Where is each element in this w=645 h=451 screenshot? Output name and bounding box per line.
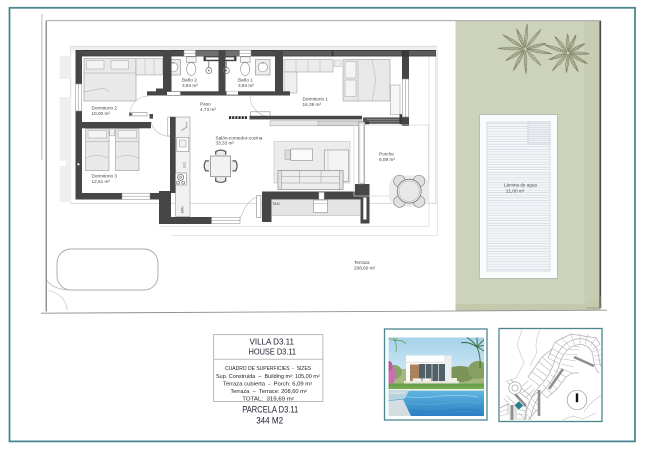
svg-text:MIN: MIN — [181, 206, 185, 213]
svg-text:PARCELA D3.11: PARCELA D3.11 — [242, 404, 298, 414]
svg-text:HOUSE D3.11: HOUSE D3.11 — [249, 347, 297, 357]
svg-text:Dormitorio 2: Dormitorio 2 — [92, 106, 118, 111]
svg-text:Terraza cubierta - Porch: 6,: Terraza cubierta - Porch: 6,09 m² — [223, 382, 313, 388]
svg-text:3,84 m²: 3,84 m² — [182, 83, 198, 88]
svg-text:Baño 1: Baño 1 — [238, 78, 253, 83]
svg-text:16,39 m²: 16,39 m² — [303, 102, 322, 107]
svg-text:6,09 m²: 6,09 m² — [379, 157, 395, 162]
svg-text:12,51 m²: 12,51 m² — [92, 179, 111, 184]
svg-text:Terraza: Terraza — [354, 260, 370, 265]
svg-text:Baño 2: Baño 2 — [182, 78, 197, 83]
svg-text:344 M2: 344 M2 — [256, 416, 283, 426]
svg-text:Lámina de agua: Lámina de agua — [504, 183, 537, 188]
svg-text:Dormitorio 1: Dormitorio 1 — [303, 97, 329, 102]
svg-text:Paso: Paso — [200, 102, 211, 107]
svg-text:TOTAL: 319,69 m²: TOTAL: 319,69 m² — [242, 396, 294, 402]
svg-text:4,73 m²: 4,73 m² — [200, 107, 216, 112]
svg-text:Salón-comedor-cocina: Salón-comedor-cocina — [216, 135, 263, 140]
svg-text:TAD: TAD — [272, 201, 280, 206]
svg-text:VILLA D3.11: VILLA D3.11 — [250, 336, 295, 346]
svg-text:Dormitorio 3: Dormitorio 3 — [92, 174, 118, 179]
svg-text:208,60 m²: 208,60 m² — [354, 266, 376, 271]
svg-text:21,00 m²: 21,00 m² — [506, 189, 525, 194]
svg-text:CUADRO DE SUPERFICIES - SIZE: CUADRO DE SUPERFICIES - SIZES — [225, 366, 312, 372]
svg-text:Sup. Construida – Building m: Sup. Construida – Building m²: 105,00 m² — [216, 374, 320, 380]
svg-text:LVJ: LVJ — [183, 162, 187, 168]
svg-text:33,33 m²: 33,33 m² — [216, 141, 235, 146]
svg-text:Terraza – Terrace: 208,60 m²: Terraza – Terrace: 208,60 m² — [230, 389, 307, 395]
svg-text:Porche: Porche — [379, 152, 394, 157]
svg-text:10,00 m²: 10,00 m² — [92, 111, 111, 116]
svg-text:3,84 m²: 3,84 m² — [238, 83, 254, 88]
